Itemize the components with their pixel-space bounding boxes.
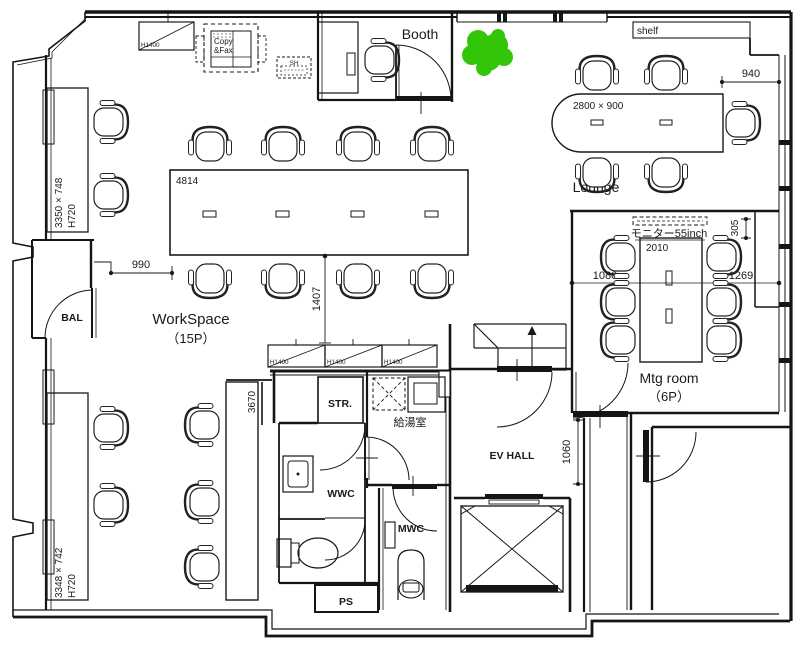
mtg-room-capacity-label: （6P） — [648, 389, 690, 404]
counter-chair — [94, 101, 128, 144]
mwc-room — [379, 488, 424, 610]
outer-walls — [13, 12, 792, 636]
floor-plan-canvas: BAL 3350 × 748 H720 3348 × 742 H720 H140… — [0, 0, 805, 646]
cabinet-row-h1400 — [268, 339, 437, 367]
str-label: STR. — [328, 398, 352, 410]
workspace-label: WorkSpace — [152, 311, 229, 328]
workspace-chair — [411, 264, 454, 298]
elevator — [454, 494, 570, 612]
workspace-chair — [189, 264, 232, 298]
workspace-chair — [262, 264, 305, 298]
dim-1269-label: 1269 — [729, 270, 753, 282]
corridor-walls — [627, 413, 790, 610]
mtg-chair — [601, 319, 635, 362]
counter-top-size-label: 3350 × 748 — [54, 177, 65, 228]
dim-990-label: 990 — [132, 259, 150, 271]
workspace-table — [170, 170, 468, 255]
lounge-chair — [576, 56, 619, 90]
cabinet-h1400-label: H1400 — [384, 359, 403, 366]
mtg-chair — [707, 319, 741, 362]
mwc-label: MWC — [398, 523, 425, 535]
lounge-chair — [645, 56, 688, 90]
dim-305-label: 305 — [730, 219, 741, 236]
dim-1060 — [573, 419, 583, 486]
ev-hall-label: EV HALL — [490, 450, 536, 462]
kitchen-label: 給湯室 — [394, 415, 427, 429]
workspace-table-size-label: 4814 — [176, 176, 199, 187]
workspace-chair — [337, 264, 380, 298]
bal-label: BAL — [61, 312, 83, 324]
cabinet-h1400-label: H1400 — [270, 359, 289, 366]
mtg-table-size-label: 2010 — [646, 243, 669, 254]
workspace-capacity-label: （15P） — [166, 331, 215, 346]
dim-1060-label: 1060 — [561, 440, 573, 464]
workspace-chair — [337, 127, 380, 161]
counter-chair — [94, 174, 128, 217]
booth-label: Booth — [402, 26, 439, 42]
kitchen-room — [356, 372, 450, 531]
counter-chair — [94, 407, 128, 450]
dim-305 — [741, 218, 751, 240]
cabinet-h1400-label: H1400 — [327, 359, 346, 366]
ps-label: PS — [339, 596, 353, 608]
booth-chair — [365, 39, 399, 82]
plant-icon — [462, 29, 513, 76]
shelf-label: shelf — [637, 26, 658, 37]
copy-fax-label-1: Copy — [214, 37, 233, 46]
mtg-chair — [601, 281, 635, 324]
wwc-room — [277, 423, 380, 583]
wwc-label: WWC — [327, 488, 355, 500]
desk-chair — [185, 404, 219, 447]
dim-1407-label: 1407 — [311, 287, 323, 311]
cabinet-h1400-top-label: H1400 — [141, 42, 160, 49]
counter-top-height-label: H720 — [67, 204, 78, 228]
counter-bottom-size-label: 3348 × 742 — [54, 547, 65, 598]
desk-chair — [185, 546, 219, 589]
workspace-chair — [262, 127, 305, 161]
counter-chair — [94, 484, 128, 527]
desk-chair — [185, 481, 219, 524]
lounge-chair — [576, 158, 619, 192]
stairs — [474, 324, 566, 370]
desk-3670 — [226, 382, 258, 600]
workspace-chair — [189, 127, 232, 161]
sh-label: SH — [290, 60, 299, 67]
counter-bottom-height-label: H720 — [67, 574, 78, 598]
mtg-chair — [601, 236, 635, 279]
mtg-chair — [707, 236, 741, 279]
lounge-chair — [645, 158, 688, 192]
lounge-table-size-label: 2800 × 900 — [573, 101, 624, 112]
mtg-table — [640, 238, 702, 362]
lounge-chair — [726, 102, 760, 145]
dim-940-label: 940 — [742, 68, 760, 80]
dim-3670-label: 3670 — [247, 390, 258, 413]
workspace-chair — [411, 127, 454, 161]
floor-plan-page: BAL 3350 × 748 H720 3348 × 742 H720 H140… — [0, 0, 805, 646]
mtg-room-label: Mtg room — [639, 370, 698, 386]
mtg-chair — [707, 281, 741, 324]
copy-fax-label-2: &Fax — [214, 46, 233, 55]
